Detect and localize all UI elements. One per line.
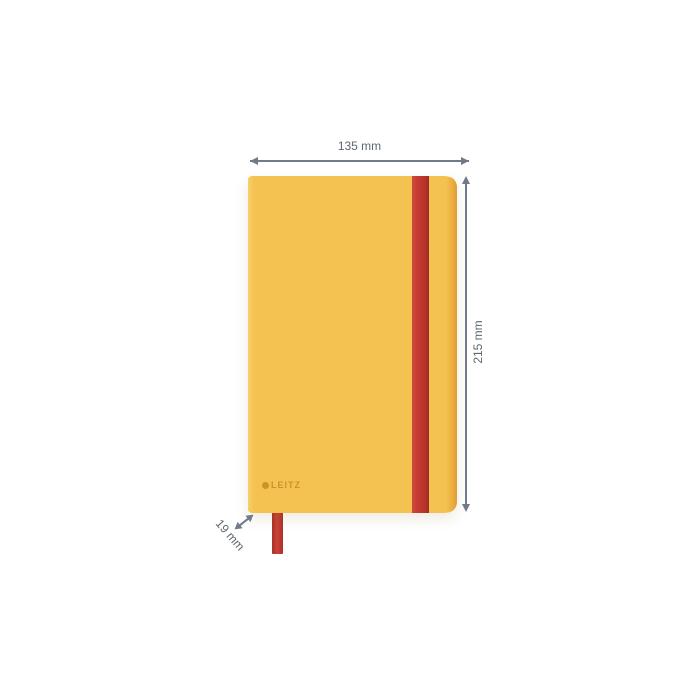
height-dimension-label: 215 mm — [471, 320, 485, 363]
cover-page-edge-shade — [446, 176, 457, 513]
arrow-down-icon — [462, 504, 470, 512]
brand-logo: LEITZ — [262, 480, 301, 490]
arrow-right-icon — [461, 157, 469, 165]
arrow-up-icon — [462, 176, 470, 184]
brand-logo-text: LEITZ — [271, 480, 301, 490]
arrow-left-icon — [250, 157, 258, 165]
height-dimension-line — [465, 178, 467, 510]
ribbon-bookmark — [272, 508, 283, 554]
cover-spine-highlight — [248, 176, 254, 513]
width-dimension-line — [250, 160, 469, 162]
elastic-band — [412, 176, 429, 513]
width-dimension-label: 135 mm — [250, 139, 469, 153]
leitz-logo-mark-icon — [262, 482, 269, 489]
product-image-canvas: 135 mm 215 mm 19 mm LEITZ — [0, 0, 700, 700]
notebook-cover: LEITZ — [248, 176, 457, 513]
